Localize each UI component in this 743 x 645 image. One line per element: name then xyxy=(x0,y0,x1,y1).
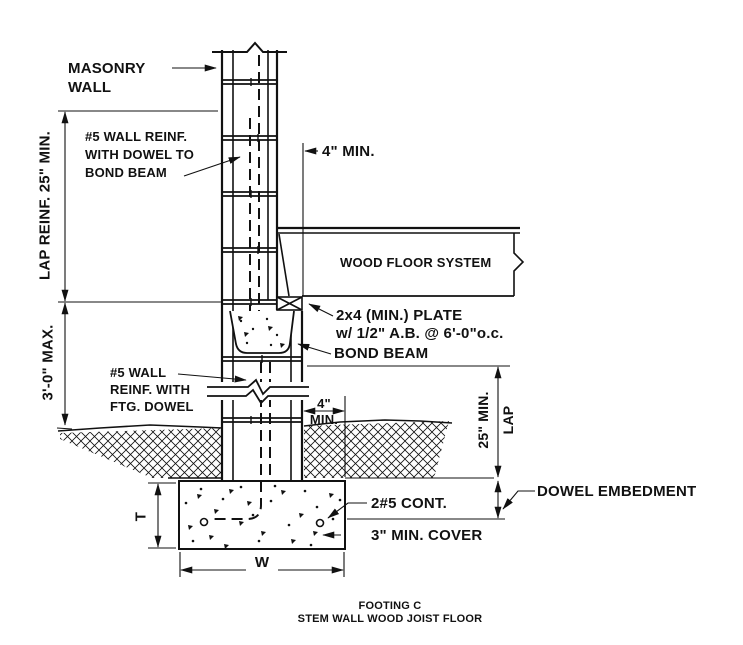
label-min-cover: 3" MIN. COVER xyxy=(371,527,482,544)
earth-hatch-left xyxy=(58,425,222,478)
leader-dowel-embedment xyxy=(503,491,535,509)
label-footing-thickness: T xyxy=(133,506,150,528)
drawing-title: FOOTING C xyxy=(240,600,540,612)
label-wall-reinf-bond-3: BOND BEAM xyxy=(85,165,167,180)
label-ledge-min-2: MIN. xyxy=(306,412,342,427)
label-dowel-embedment: DOWEL EMBEDMENT xyxy=(537,483,696,500)
label-lap-right-2: LAP xyxy=(500,399,516,441)
footing xyxy=(179,481,345,549)
label-wall-reinf-ftg-3: FTG. DOWEL xyxy=(110,399,194,414)
label-masonry-wall: MASONRY xyxy=(68,60,146,77)
label-wall-reinf-bond-2: WITH DOWEL TO xyxy=(85,147,194,162)
rim-diagonal xyxy=(279,234,289,296)
label-masonry-wall-2: WALL xyxy=(68,79,111,96)
label-ledge-min: 4" xyxy=(308,396,340,411)
label-bearing-min: 4" MIN. xyxy=(322,143,375,160)
masonry-wall xyxy=(212,43,302,481)
bond-beam xyxy=(230,311,294,353)
label-plate-2: w/ 1/2" A.B. @ 6'-0"o.c. xyxy=(336,325,504,342)
label-footing-width: W xyxy=(242,554,282,571)
rebar-2#5-left xyxy=(201,519,208,526)
leader-wall-reinf-ftg xyxy=(178,374,246,380)
footing-detail-drawing: MASONRY WALL #5 WALL REINF. WITH DOWEL T… xyxy=(0,0,743,645)
stem-wall-break xyxy=(206,380,309,403)
label-wall-reinf-ftg-2: REINF. WITH xyxy=(110,382,190,397)
label-cont-bars: 2#5 CONT. xyxy=(371,495,447,512)
wall-top-break xyxy=(212,43,287,52)
earth-hatch-right xyxy=(304,420,494,478)
label-plate: 2x4 (MIN.) PLATE xyxy=(336,307,462,324)
label-bond-beam: BOND BEAM xyxy=(334,345,428,362)
label-wall-reinf-bond: #5 WALL REINF. xyxy=(85,129,187,144)
floor-break xyxy=(514,233,523,296)
label-wood-floor-system: WOOD FLOOR SYSTEM xyxy=(340,255,491,270)
label-stem-height-max: 3'-0" MAX. xyxy=(40,303,57,423)
sill-plate xyxy=(277,297,302,310)
label-lap-left: LAP REINF. 25" MIN. xyxy=(37,106,54,306)
label-wall-reinf-ftg: #5 WALL xyxy=(110,365,166,380)
leader-plate xyxy=(309,304,333,316)
label-lap-right: 25" MIN. xyxy=(475,380,491,460)
drawing-subtitle: STEM WALL WOOD JOIST FLOOR xyxy=(240,613,540,625)
rebar-2#5-right xyxy=(317,520,324,527)
